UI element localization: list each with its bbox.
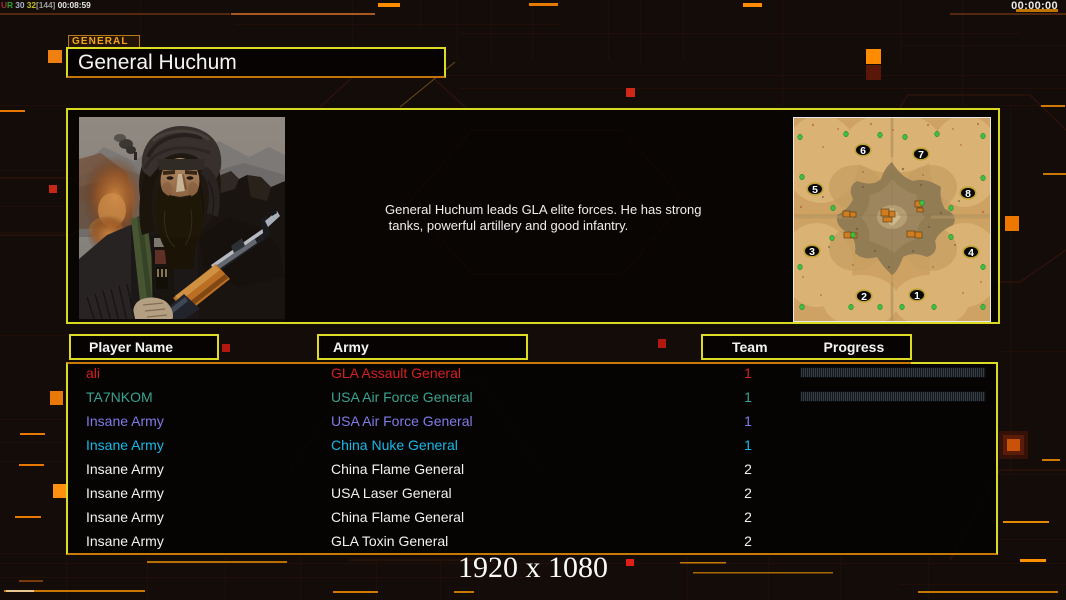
svg-text:1: 1: [914, 290, 920, 302]
svg-text:7: 7: [918, 149, 924, 161]
svg-text:6: 6: [860, 145, 866, 157]
svg-text:3: 3: [809, 246, 815, 258]
svg-text:4: 4: [968, 247, 974, 259]
svg-text:5: 5: [812, 184, 818, 196]
svg-text:8: 8: [965, 188, 971, 200]
svg-text:2: 2: [861, 291, 867, 303]
